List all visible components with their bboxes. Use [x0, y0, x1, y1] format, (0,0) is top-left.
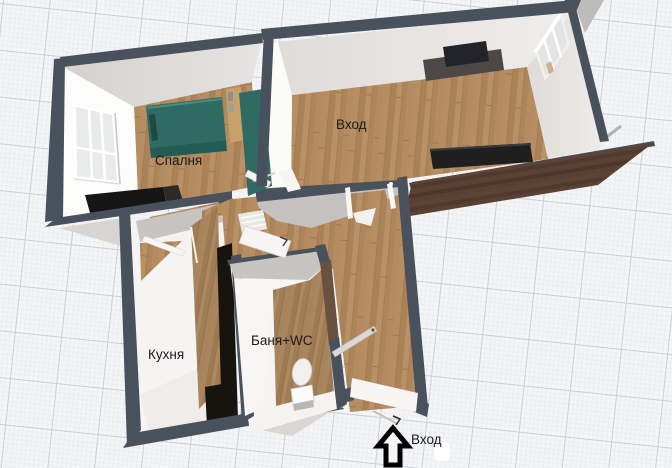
- svg-text:Кухня: Кухня: [148, 347, 184, 362]
- svg-text:Баня+WC: Баня+WC: [251, 333, 313, 348]
- svg-text:Спалня: Спалня: [155, 153, 202, 168]
- svg-text:Вход: Вход: [411, 432, 442, 447]
- svg-text:Вход: Вход: [336, 117, 367, 132]
